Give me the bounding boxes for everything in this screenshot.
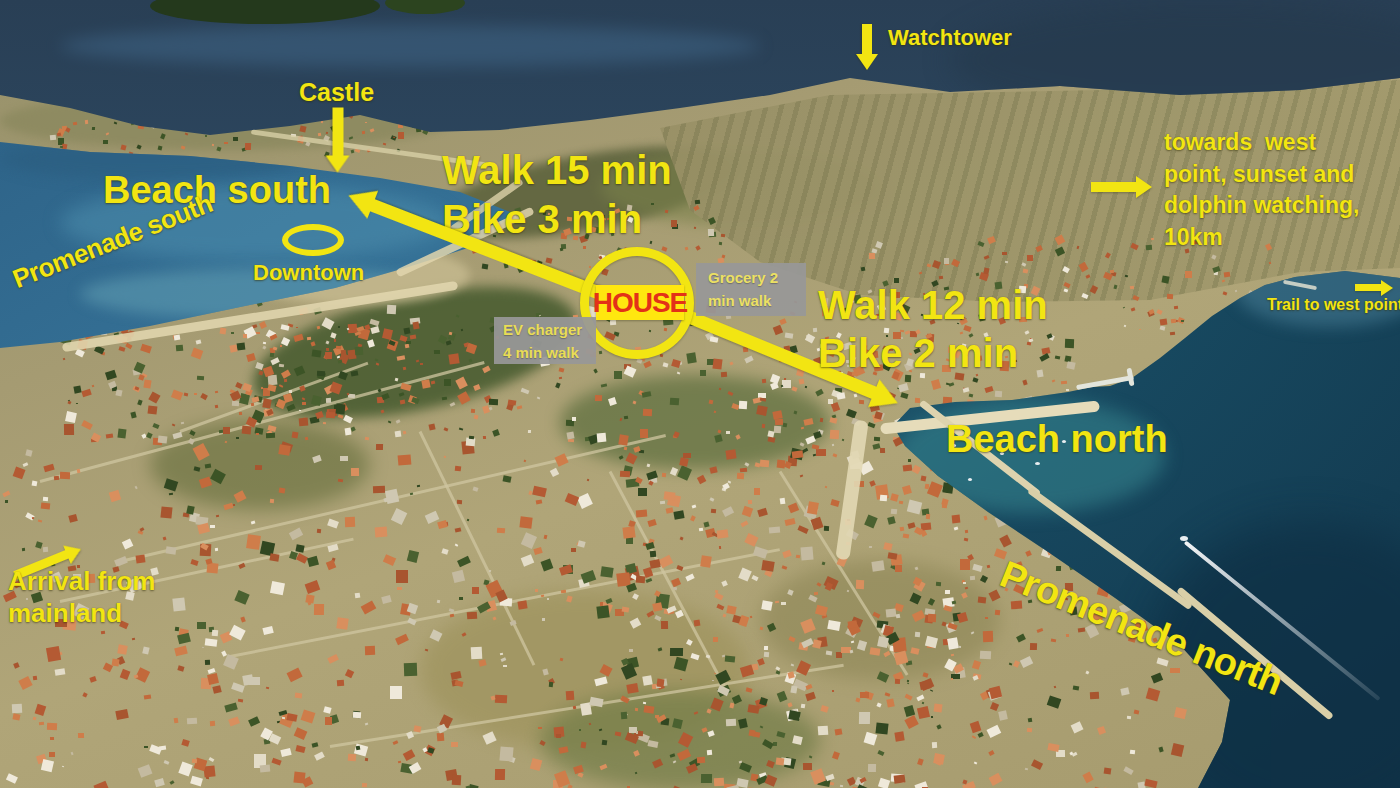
towards-west-point-label: towards west point, sunset and dolphin w…: [1164, 127, 1359, 253]
towards-west-line4: 10km: [1164, 222, 1359, 254]
towards-west-point-arrow: [1091, 182, 1136, 192]
grocery-info-box: Grocery 2 min walk: [696, 263, 806, 316]
towards-west-line3: dolphin watching,: [1164, 190, 1359, 222]
ev-charger-info-box: EV charger 4 min walk: [494, 317, 596, 364]
arrival-line1: Arrival from: [8, 566, 155, 598]
towards-west-line2: point, sunset and: [1164, 159, 1359, 191]
beach-north-label: Beach north: [946, 419, 1168, 461]
house-label: HOUSE: [593, 287, 688, 319]
grocery-line1: Grocery 2: [708, 267, 806, 290]
downtown-ellipse: [282, 224, 344, 256]
trail-west-point-label: Trail to west point: [1267, 296, 1400, 314]
grocery-line2: min walk: [708, 290, 806, 313]
promenade-north-label: Promenade north: [994, 553, 1288, 703]
castle-label: Castle: [299, 79, 374, 107]
bike-north-label: Bike 2 min: [818, 331, 1018, 375]
annotated-aerial-map: Watchtower Castle Beach south Promenade …: [0, 0, 1400, 788]
ev-charger-line1: EV charger: [503, 319, 596, 342]
walk-north-label: Walk 12 min: [818, 283, 1048, 327]
bike-south-label: Bike 3 min: [442, 197, 642, 241]
watchtower-label: Watchtower: [888, 26, 1012, 50]
ev-charger-line2: 4 min walk: [503, 342, 596, 365]
castle-arrow: [333, 108, 344, 156]
arrival-line2: mainland: [8, 598, 155, 630]
towards-west-line1: towards west: [1164, 127, 1359, 159]
walk-south-label: Walk 15 min: [442, 148, 672, 192]
downtown-label: Downtown: [253, 261, 364, 285]
house-label-box: HOUSE: [596, 285, 684, 320]
trail-west-point-arrow: [1355, 284, 1381, 291]
watchtower-arrow: [862, 24, 872, 54]
arrival-label: Arrival from mainland: [8, 566, 155, 629]
annotations-layer: Watchtower Castle Beach south Promenade …: [0, 0, 1400, 788]
beach-south-label: Beach south: [103, 170, 331, 212]
